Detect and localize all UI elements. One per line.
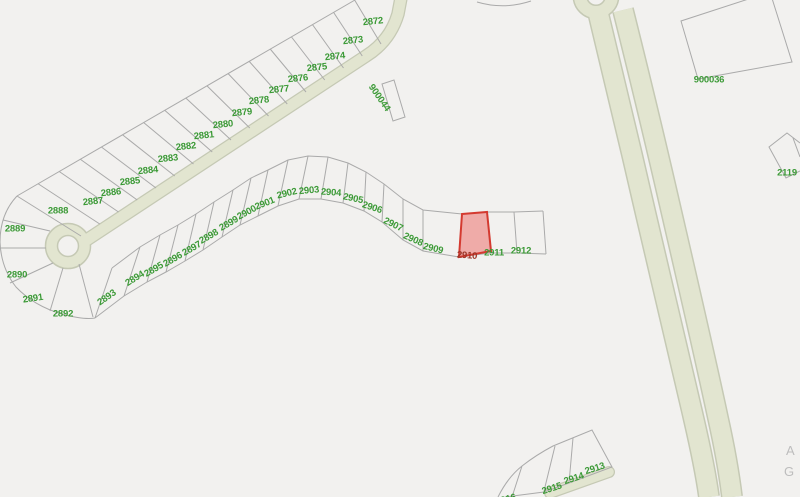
lot-dividers — [17, 0, 546, 318]
parcel-label-2904[interactable]: 2904 — [321, 188, 342, 199]
edge-text-0: A — [786, 443, 795, 458]
map-canvas[interactable]: 2872287328742875287628772878287928802881… — [0, 0, 800, 497]
parcel-label-2903[interactable]: 2903 — [298, 185, 319, 196]
parcel-label-2892[interactable]: 2892 — [53, 309, 73, 319]
map-svg — [0, 0, 800, 497]
parcel-label-2883[interactable]: 2883 — [157, 153, 178, 165]
parcel-label-2874[interactable]: 2874 — [324, 51, 345, 63]
parcel-label-2884[interactable]: 2884 — [137, 165, 158, 177]
parcel-label-2119[interactable]: 2119 — [777, 168, 797, 178]
parcel-label-900036[interactable]: 900036 — [694, 75, 725, 85]
parcel-label-2878[interactable]: 2878 — [248, 95, 269, 107]
parcel-label-2881[interactable]: 2881 — [193, 130, 214, 142]
parcel-label-2912[interactable]: 2912 — [511, 246, 531, 256]
parcel-label-2880[interactable]: 2880 — [212, 119, 233, 131]
parcel-label-2872[interactable]: 2872 — [362, 16, 383, 28]
parcel-label-2877[interactable]: 2877 — [268, 84, 289, 96]
parcel-900036-outline[interactable] — [681, 0, 792, 79]
parcel-label-2879[interactable]: 2879 — [231, 107, 252, 119]
parcel-label-2890[interactable]: 2890 — [7, 270, 27, 280]
edge-text-1: G — [784, 464, 794, 479]
road-layer — [52, 0, 733, 497]
parcel-label-2887[interactable]: 2887 — [82, 196, 103, 208]
parcel-label-2888[interactable]: 2888 — [48, 206, 68, 216]
parcel-label-2882[interactable]: 2882 — [175, 141, 196, 153]
divided-road-left — [597, 8, 709, 497]
parcel-label-2885[interactable]: 2885 — [119, 176, 140, 188]
parcel-label-2910[interactable]: 2910 — [457, 251, 478, 262]
top-boundary-arc — [477, 1, 531, 6]
parcel-label-2875[interactable]: 2875 — [306, 62, 327, 74]
parcel-label-2873[interactable]: 2873 — [342, 35, 363, 47]
parcel-label-2889[interactable]: 2889 — [5, 224, 25, 234]
parcel-label-2911[interactable]: 2911 — [484, 248, 504, 258]
parcel-label-2876[interactable]: 2876 — [287, 73, 308, 85]
parcel-label-2886[interactable]: 2886 — [100, 187, 121, 199]
cul-de-sac — [52, 230, 85, 263]
